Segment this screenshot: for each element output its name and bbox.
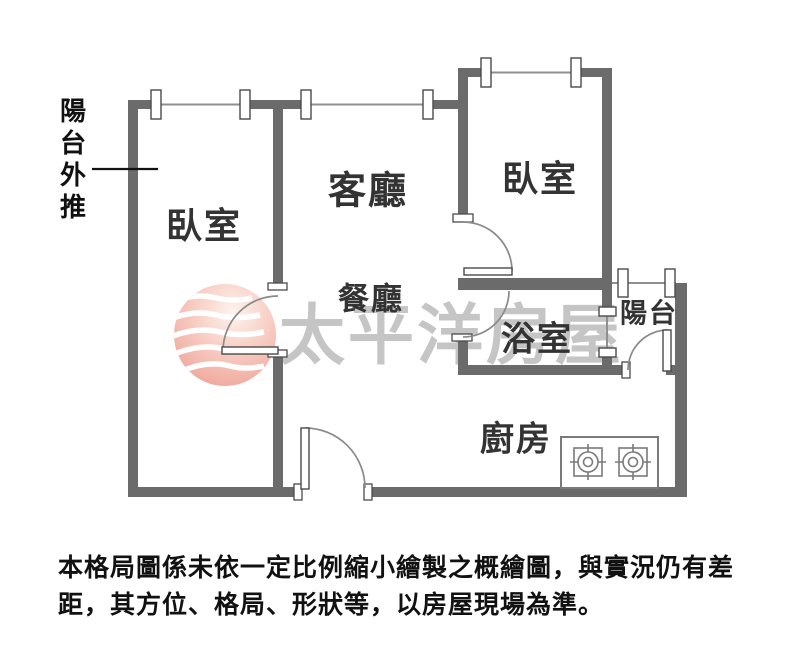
door-jamb (268, 283, 287, 290)
wall-interior-lower (273, 352, 283, 487)
balcony-pushed-out-note: 陽台外推 (56, 96, 90, 224)
disclaimer-line-1: 本格局圖係未依一定比例縮小繪製之概繪圖，與實況仍有差 (58, 549, 768, 586)
burner-icon (570, 444, 606, 480)
window-jamb (599, 307, 616, 316)
window-jamb (423, 90, 433, 119)
wall-bath-balcony-a (602, 290, 612, 308)
door-jamb (453, 214, 473, 222)
disclaimer-text: 本格局圖係未依一定比例縮小繪製之概繪圖，與實況仍有差 距，其方位、格局、形狀等，… (58, 549, 768, 623)
window-jamb (599, 348, 616, 357)
wall-interior-upper (273, 109, 283, 285)
bathroom-label: 浴室 (501, 312, 573, 361)
window-jamb (571, 58, 581, 87)
door-leaf-balcony (663, 330, 671, 371)
wall-bathroom-bottom (458, 365, 628, 375)
window-jamb (240, 90, 250, 119)
living-room-label: 客廳 (328, 160, 408, 215)
wall-bedroom2-right (602, 68, 612, 290)
burner-icon (615, 444, 651, 480)
door-swing-entrance (305, 428, 365, 488)
door-swing-bedroom-right (463, 222, 512, 271)
door-leaf-bedroom-left (222, 347, 278, 354)
door-leaf-bedroom-right (464, 268, 512, 275)
window-jamb (151, 90, 161, 119)
door-leaf-entrance (301, 428, 309, 489)
walls (128, 68, 687, 497)
wall-bedroom2-left (458, 68, 468, 216)
floorplan-canvas: 太平洋房屋 (0, 0, 800, 668)
stove-icon (561, 437, 658, 488)
wall-top-a (128, 100, 153, 109)
wall-top-b (250, 100, 303, 109)
door-swing-balcony (628, 330, 668, 370)
bedroom-right-label: 臥室 (502, 150, 578, 202)
wall-left (128, 100, 138, 497)
bedroom-left-label: 臥室 (166, 197, 242, 249)
window-jamb (301, 90, 311, 119)
dining-room-label: 餐廳 (338, 274, 404, 319)
window-jamb (481, 58, 491, 87)
balcony-label: 陽台 (620, 292, 678, 331)
disclaimer-line-2: 距，其方位、格局、形狀等，以房屋現場為準。 (58, 586, 768, 623)
wall-bottom-a (128, 487, 298, 497)
wall-bathroom-top (458, 278, 612, 290)
kitchen-label: 廚房 (480, 412, 552, 461)
